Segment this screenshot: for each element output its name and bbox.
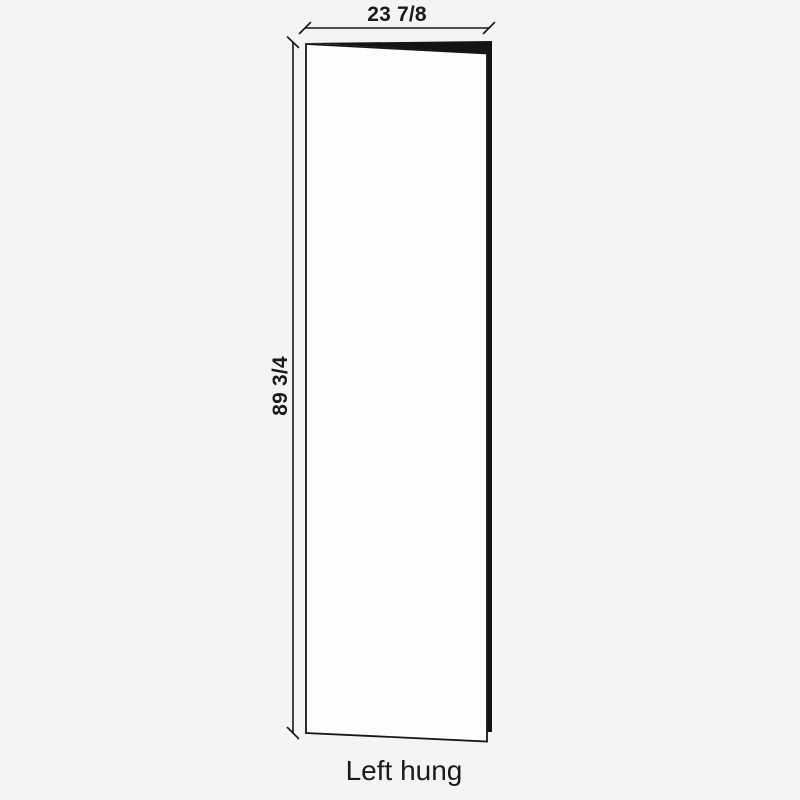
door-diagram: 23 7/8 89 3/4 Left hung (0, 0, 800, 800)
door-panel (306, 41, 492, 742)
door-front-face (306, 44, 487, 742)
width-dimension-label: 23 7/8 (305, 4, 489, 26)
hinge-type-caption: Left hung (308, 756, 500, 786)
door-diagram-canvas (0, 0, 800, 800)
height-dimension-label: 89 3/4 (270, 326, 292, 446)
